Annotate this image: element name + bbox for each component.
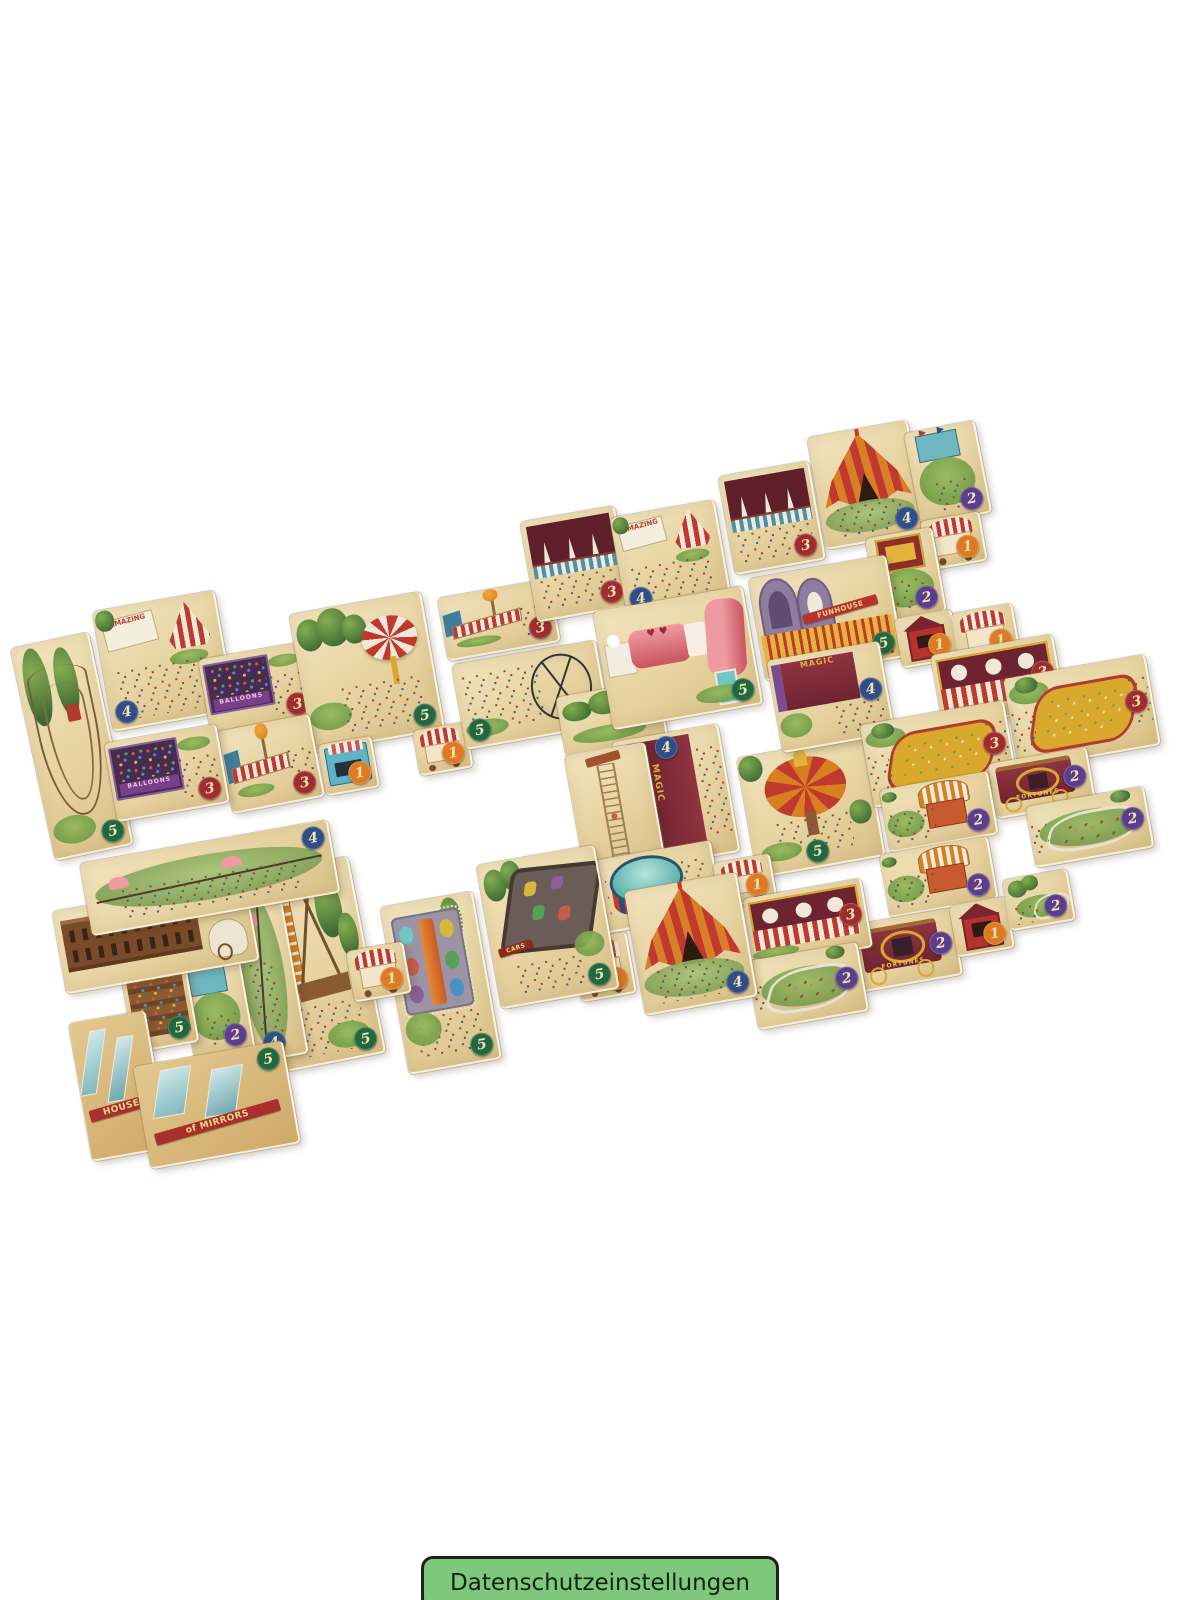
tile-art-layer: [232, 751, 292, 784]
tile-art-layer: [1109, 789, 1131, 804]
tile-art-layer: [884, 542, 916, 564]
tile-juggling-booth-b: 3: [718, 461, 826, 575]
tile-art-layer: [779, 711, 814, 740]
tile-art-layer: [176, 734, 211, 752]
tile-art-layer: [854, 428, 859, 436]
tile-art-layer: [761, 907, 779, 924]
tile-art-layer: [266, 652, 299, 669]
tile-art-layer: [795, 901, 813, 918]
tile-art-layer: [253, 722, 269, 741]
tile-art-layer: [327, 740, 364, 756]
tile-balloon-darts-b: BALLOONS3: [104, 724, 230, 823]
tile-art-layer: [237, 781, 275, 800]
tile-art-layer: [589, 533, 600, 555]
privacy-settings-button[interactable]: Datenschutzeinstellungen: [421, 1556, 779, 1600]
tile-art-layer: [339, 673, 428, 736]
product-page: 5AMAZING4BALLOONS353BALLOONS311353AMAZIN…: [0, 0, 1200, 1600]
tile-art-layer: [565, 537, 576, 559]
tile-art-layer: [888, 871, 938, 911]
tile-art-layer: [1060, 814, 1124, 845]
tile-art-layer: [703, 598, 747, 678]
tile-art-layer: [670, 506, 711, 550]
tile-art-layer: BALLOONS: [202, 654, 275, 716]
tile-art-layer: [611, 813, 618, 820]
tile-big-top-b: 4: [624, 872, 758, 1016]
tile-balloon-fence-a: 3: [217, 714, 325, 814]
tile-art-layer: [1042, 684, 1126, 740]
tile-art-layer: [825, 944, 846, 960]
tile-art-layer: [558, 905, 572, 920]
tile-art-layer: [754, 575, 803, 638]
tile-ticket-booth-b: 1: [949, 896, 1015, 957]
tile-art-layer: [531, 905, 545, 920]
tile-value-badge: 2: [965, 871, 992, 898]
tile-art-layer: ♥ ♥: [627, 622, 693, 670]
tile-snack-bar: 1: [318, 736, 380, 797]
tile-art-layer: BALLOONS: [108, 737, 185, 801]
tile-art-layer: [51, 811, 99, 847]
tile-art-layer: [949, 664, 968, 682]
tile-art-layer: [848, 798, 873, 825]
tile-art-layer: [936, 425, 945, 434]
tile-art-layer: [762, 491, 773, 513]
tile-art-layer: [1027, 772, 1048, 790]
tile-tunnel-of-love: ♥ ♥5: [593, 586, 764, 731]
tile-art-layer: [364, 990, 372, 998]
tile-art-layer: [881, 856, 898, 868]
tile-art-layer: [163, 598, 212, 650]
tile-art-layer: [677, 881, 683, 890]
tile-art-layer: [1013, 902, 1042, 925]
product-photo: 5AMAZING4BALLOONS353BALLOONS311353AMAZIN…: [0, 0, 1200, 1300]
tile-value-badge: 2: [965, 806, 992, 833]
tile-art-layer: [736, 754, 764, 784]
tile-art-layer: [765, 589, 793, 629]
tile-art-layer: [738, 496, 749, 518]
tile-art-layer: [429, 764, 437, 771]
tile-art-layer: [918, 429, 927, 438]
tile-art-layer: [540, 541, 551, 563]
tile-art-layer: [891, 936, 913, 957]
tile-art-layer: [481, 588, 499, 603]
tile-art-layer: [899, 728, 984, 780]
tile-art-layer: [206, 916, 251, 960]
tile-art-layer: [784, 487, 795, 509]
tile-art-layer: [792, 749, 808, 768]
tile-art-layer: [881, 791, 898, 803]
tile-pen-trees: 2: [1002, 869, 1076, 932]
tile-art-layer: [984, 658, 1003, 676]
tile-art-layer: [216, 942, 234, 961]
tile-dodgem-cars: CARS5: [476, 845, 620, 1010]
tile-art-layer: [606, 634, 620, 648]
tile-art-layer: [780, 972, 841, 1005]
tile-art-layer: [793, 575, 836, 631]
tile-house-of-mirrors-b: of MIRRORS5: [133, 1041, 301, 1170]
tile-art-layer: [550, 875, 564, 890]
tile-art-layer: [523, 881, 537, 896]
tile-art-layer: [888, 806, 938, 846]
tile-art-layer: [939, 558, 948, 566]
tile-art-layer: [515, 951, 593, 998]
tile-candy-shop-b: 1: [346, 941, 412, 1002]
